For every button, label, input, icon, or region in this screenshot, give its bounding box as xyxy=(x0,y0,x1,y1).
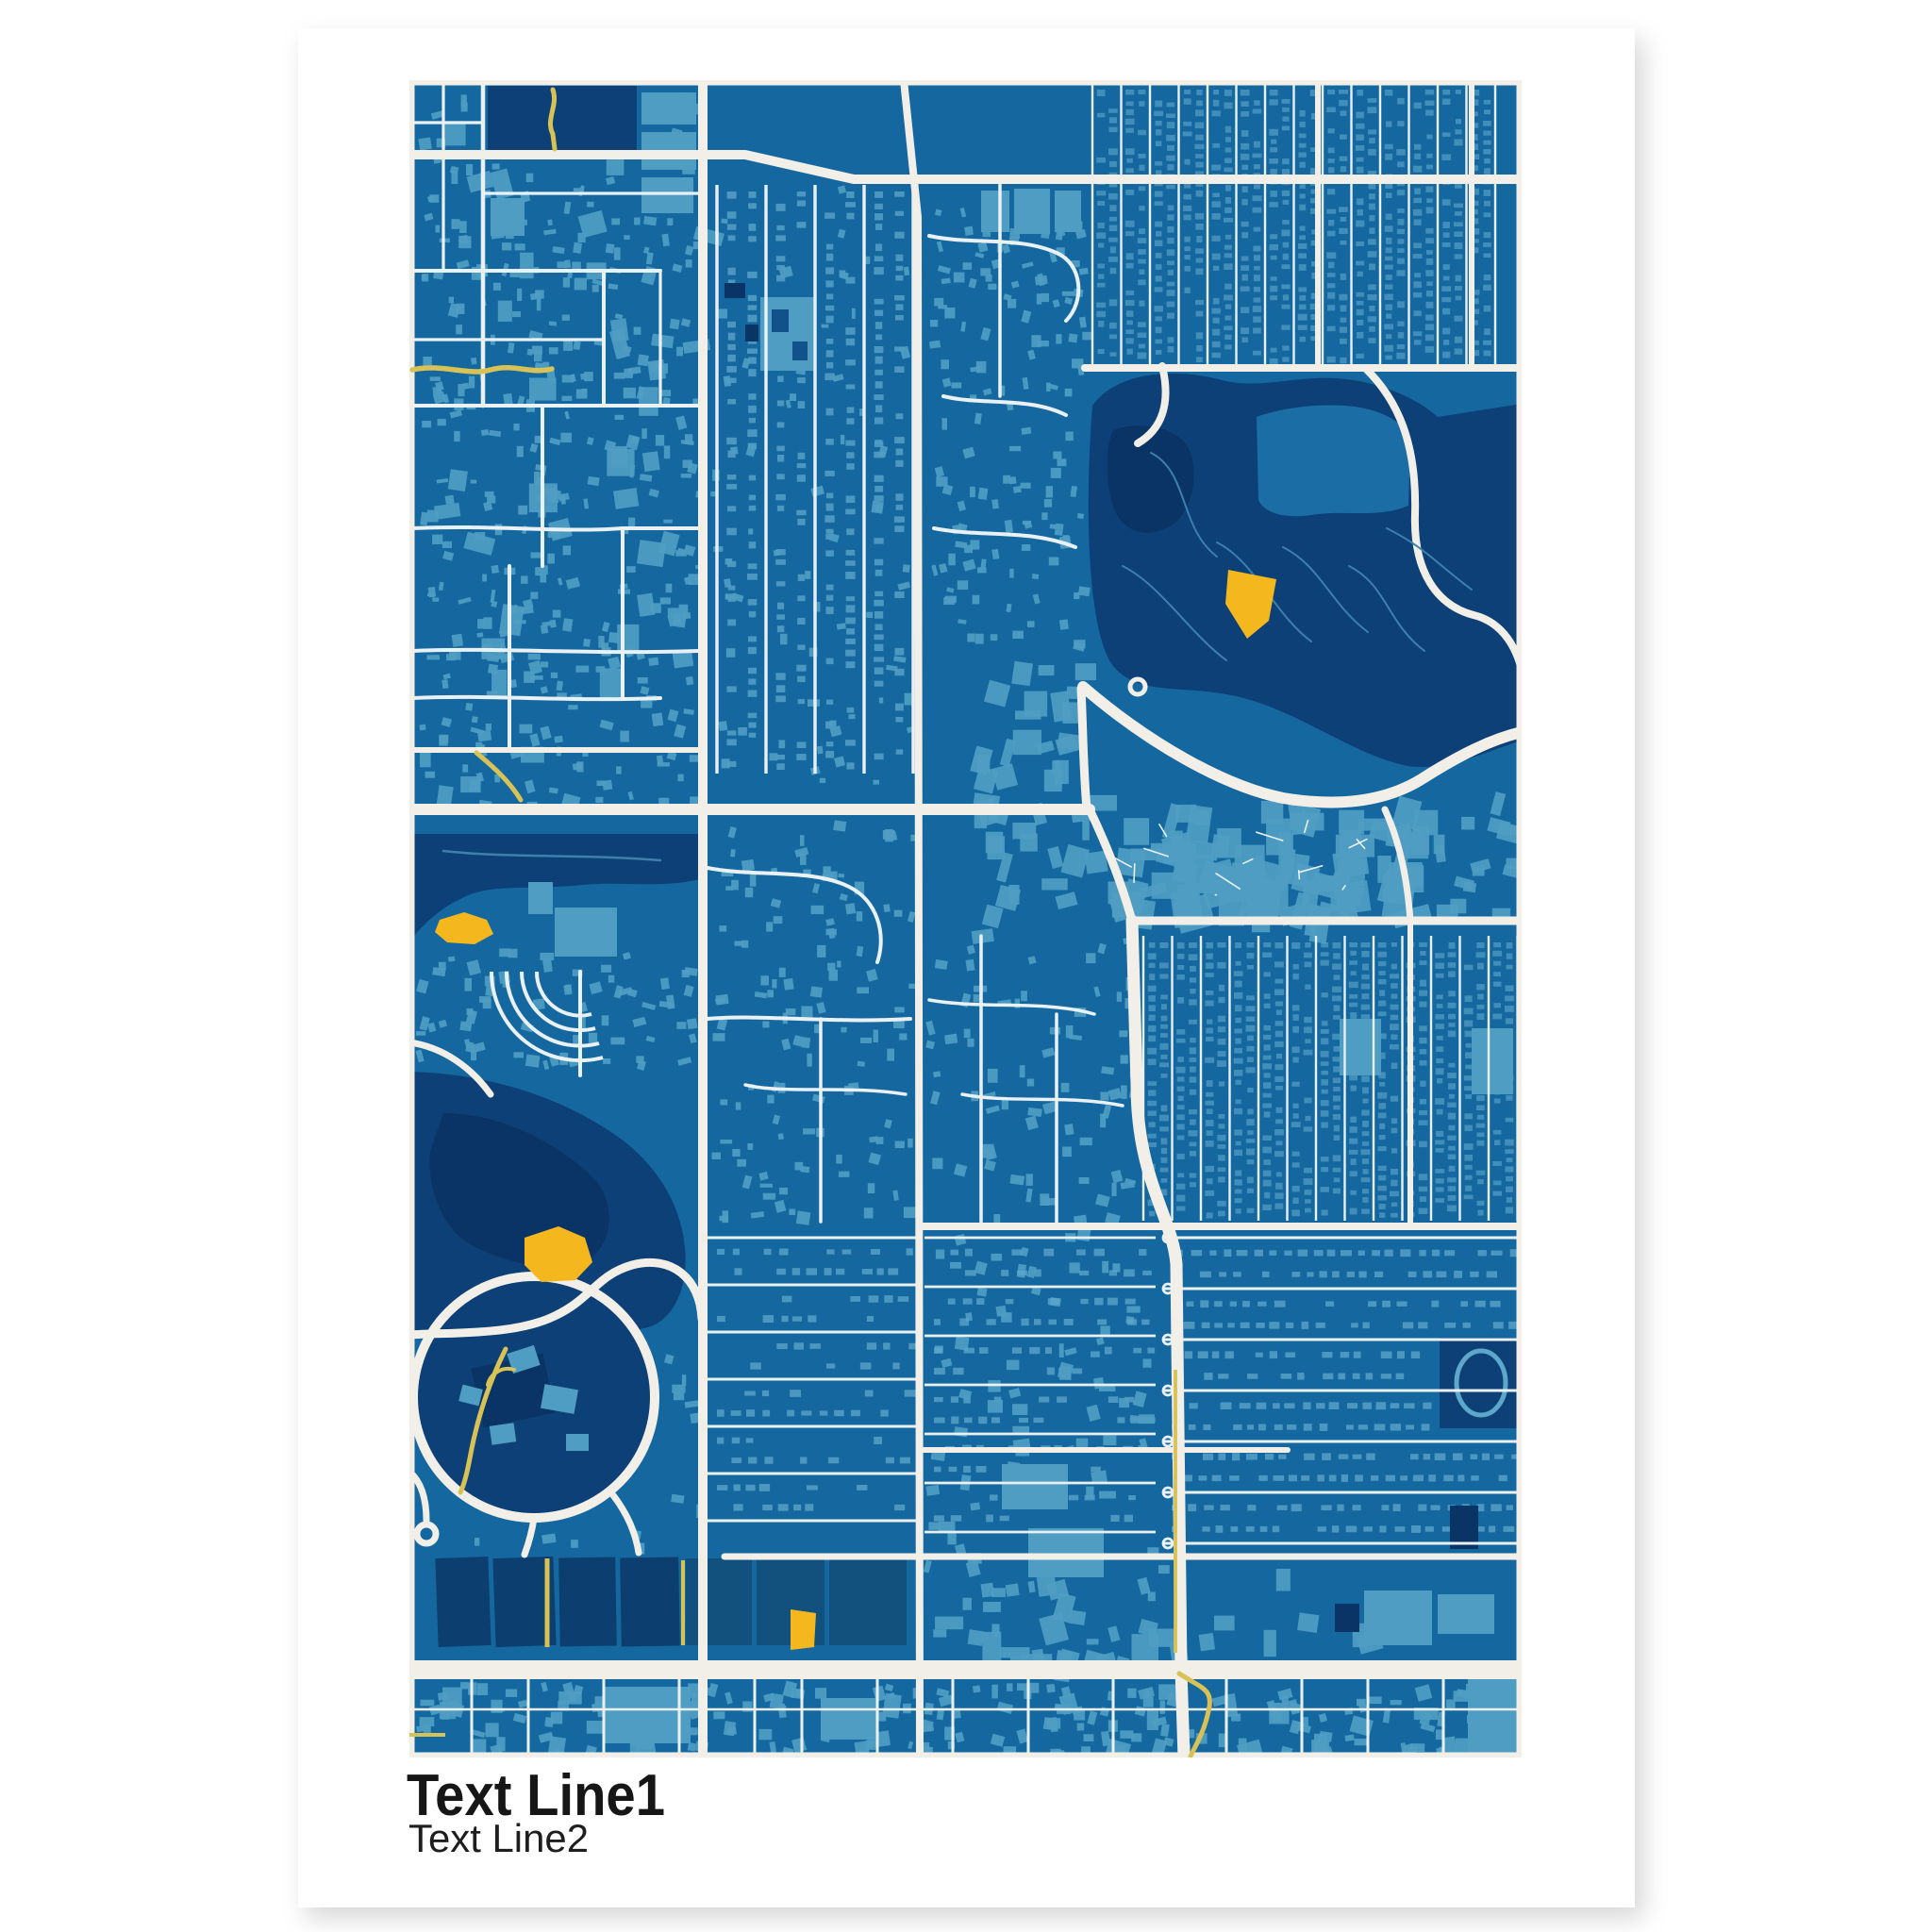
svg-text:Text Line2: Text Line2 xyxy=(408,1816,589,1860)
